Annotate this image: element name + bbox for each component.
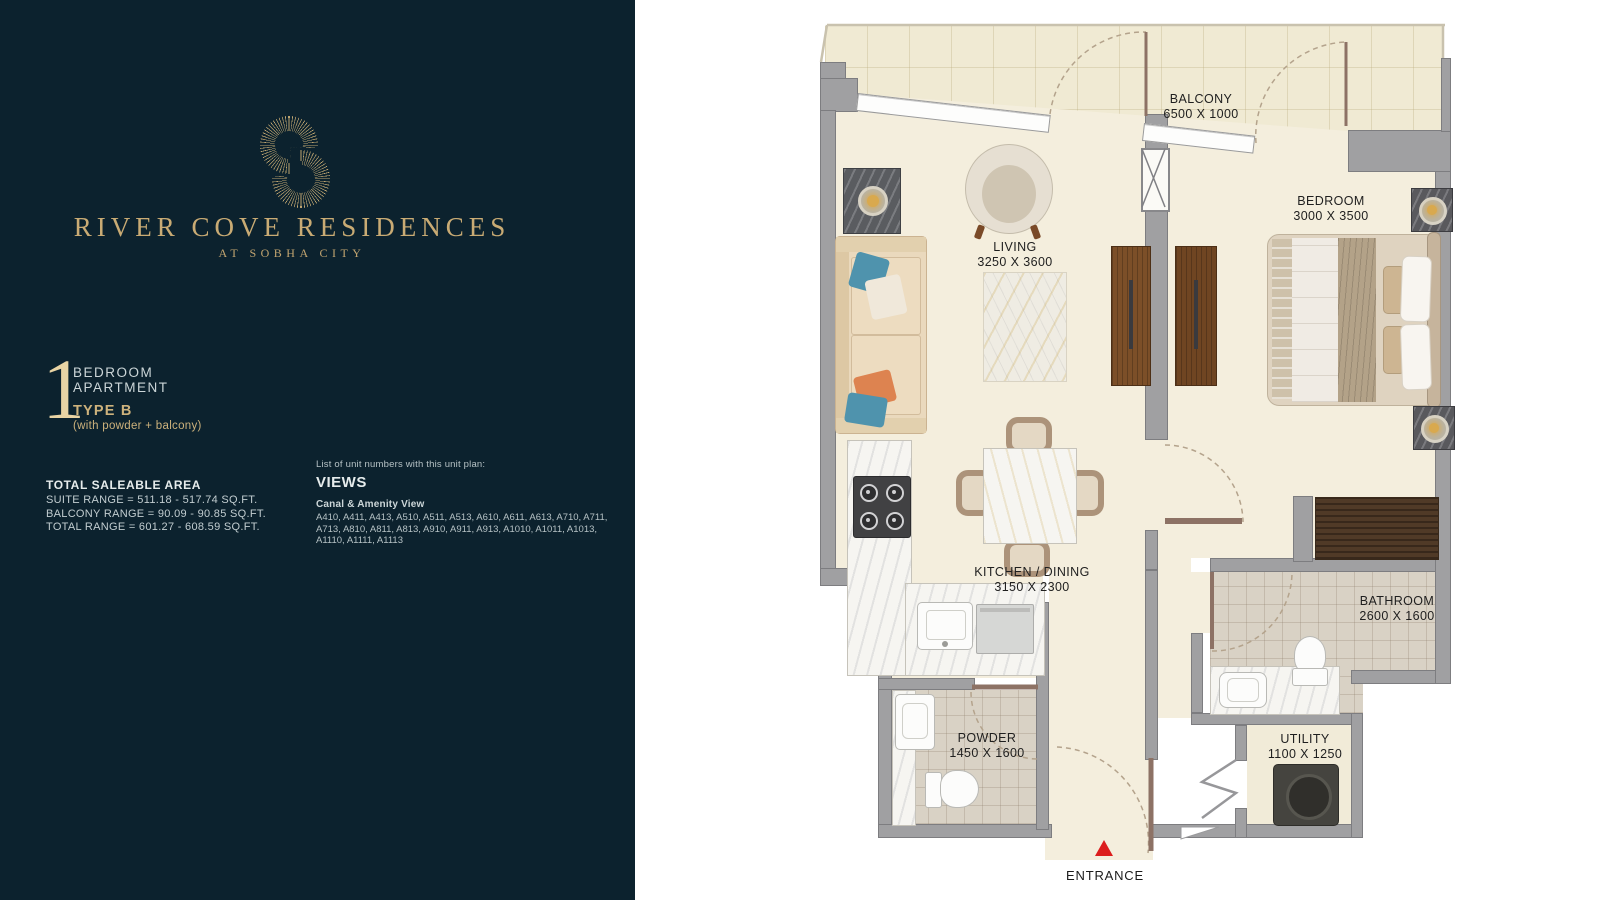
- brand-logo-icon: [258, 116, 332, 208]
- floor-corridor: [1049, 558, 1149, 842]
- label-living: LIVING 3250 X 3600: [935, 240, 1095, 270]
- bifold-door-icon: [1202, 760, 1236, 818]
- label-bedroom: BEDROOM 3000 X 3500: [1251, 194, 1411, 224]
- label-powder: POWDER 1450 X 1600: [907, 731, 1067, 761]
- unit-type: TYPE B: [73, 403, 133, 419]
- nightstand: [1413, 406, 1455, 450]
- unit-title-line2: APARTMENT: [73, 380, 169, 395]
- unit-list-intro: List of unit numbers with this unit plan…: [316, 459, 485, 470]
- living-rug: [983, 272, 1067, 382]
- sofa: [835, 236, 927, 434]
- wall-segment: [820, 78, 858, 112]
- area-row-suite: SUITE RANGE = 511.18 - 517.74 SQ.FT.: [46, 494, 266, 508]
- bed-pillow: [1400, 323, 1432, 390]
- bed-pillow: [1400, 255, 1432, 322]
- wall-segment: [1351, 670, 1443, 684]
- label-balcony: BALCONY 6500 X 1000: [1141, 92, 1261, 122]
- wall-segment: [1348, 130, 1451, 172]
- dishwasher: [976, 604, 1034, 654]
- page: RIVER COVE RESIDENCES AT SOBHA CITY 1 BE…: [0, 0, 1600, 900]
- tv-unit: [1111, 246, 1151, 386]
- wall-segment: [1191, 633, 1203, 713]
- toilet-tank: [1292, 668, 1328, 686]
- views-heading: VIEWS: [316, 474, 367, 491]
- area-table: SUITE RANGE = 511.18 - 517.74 SQ.FT. BAL…: [46, 494, 266, 535]
- entrance-label: ENTRANCE: [1045, 868, 1165, 883]
- wall-segment: [820, 110, 836, 570]
- kitchen-sink: [917, 602, 973, 650]
- unit-title: BEDROOM APARTMENT: [73, 365, 169, 395]
- wall-segment: [1293, 496, 1313, 562]
- area-row-balcony: BALCONY RANGE = 90.09 - 90.85 SQ.FT.: [46, 508, 266, 522]
- bedroom-wardrobe-panel: [1175, 246, 1217, 386]
- table-lamp-glow-icon: [867, 195, 879, 207]
- nightstand: [1411, 188, 1453, 232]
- dining-table: [983, 448, 1077, 544]
- label-kitchen: KITCHEN / DINING 3150 X 2300: [952, 565, 1112, 595]
- structural-column: [1141, 148, 1170, 212]
- unit-title-line1: BEDROOM: [73, 365, 169, 380]
- side-table: [843, 168, 901, 234]
- wall-segment: [1151, 824, 1363, 838]
- floor-bath-doorway: [1191, 572, 1210, 633]
- floor-plan: BALCONY 6500 X 1000 LIVING 3250 X 3600 B…: [795, 18, 1455, 898]
- entrance-marker-icon: [1095, 840, 1113, 856]
- area-heading: TOTAL SALEABLE AREA: [46, 478, 201, 492]
- wall-segment: [878, 824, 1052, 838]
- area-row-total: TOTAL RANGE = 601.27 - 608.59 SQ.FT.: [46, 521, 266, 535]
- wall-segment: [1441, 58, 1451, 132]
- unit-numbers-list: A410, A411, A413, A510, A511, A513, A610…: [316, 512, 616, 547]
- wall-segment: [1145, 570, 1158, 760]
- outside-area: [1363, 684, 1453, 874]
- pillow-blue: [844, 392, 888, 428]
- unit-type-note: (with powder + balcony): [73, 420, 202, 432]
- bathroom-basin: [1219, 672, 1267, 708]
- bedroom-wardrobe: [1315, 497, 1439, 560]
- brand-name: RIVER COVE RESIDENCES: [0, 212, 584, 243]
- views-subheading: Canal & Amenity View: [316, 499, 424, 510]
- wall-segment: [1210, 558, 1443, 572]
- label-utility: UTILITY 1100 X 1250: [1225, 732, 1385, 762]
- brand-tagline: AT SOBHA CITY: [0, 246, 584, 261]
- wall-segment: [1235, 808, 1247, 838]
- floor-nook: [1158, 558, 1191, 718]
- left-panel: RIVER COVE RESIDENCES AT SOBHA CITY 1 BE…: [0, 0, 635, 900]
- powder-toilet: [940, 770, 979, 808]
- armchair: [965, 144, 1053, 234]
- washing-machine: [1273, 764, 1339, 826]
- wall-segment: [1145, 530, 1158, 570]
- stove: [853, 476, 911, 538]
- wall-segment: [878, 678, 975, 690]
- label-bathroom: BATHROOM 2600 X 1600: [1317, 594, 1477, 624]
